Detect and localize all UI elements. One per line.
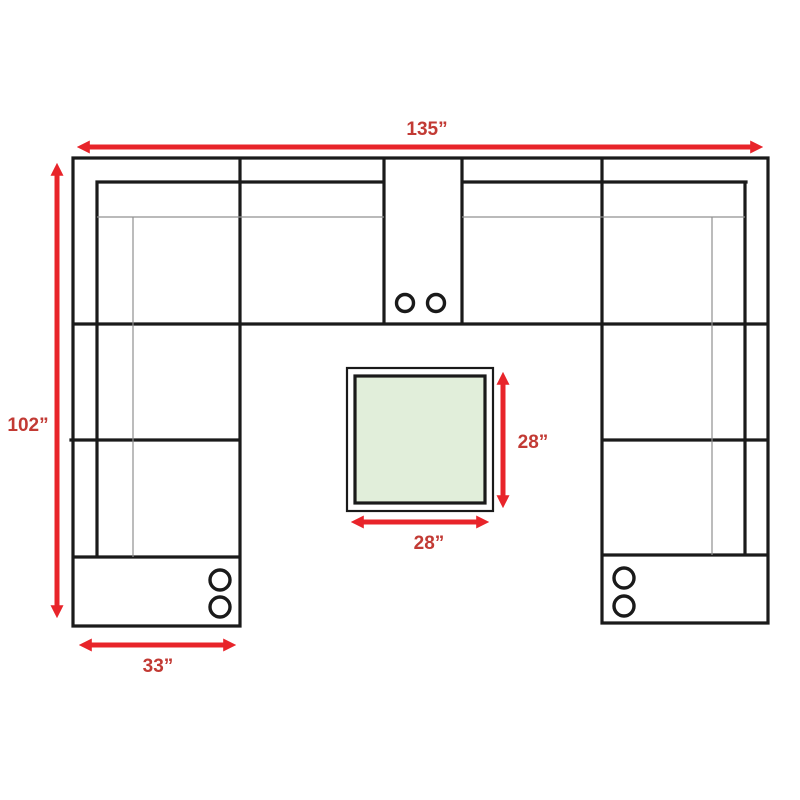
dimension-label-overall-depth: 102” <box>7 415 48 436</box>
floor-plan-canvas: 135” 102” 33” 28” 28” <box>0 0 800 800</box>
cupholder-icon <box>210 570 230 590</box>
cupholder-icon <box>428 295 445 312</box>
cupholder-icon <box>210 597 230 617</box>
cupholder-icon <box>397 295 414 312</box>
cupholder-icon <box>614 596 634 616</box>
dimension-label-arm-width: 33” <box>143 656 174 677</box>
dimension-label-table-depth: 28” <box>518 432 549 453</box>
center-table <box>347 368 493 511</box>
dimension-label-table-width: 28” <box>414 533 445 554</box>
dimension-label-overall-width: 135” <box>406 119 447 140</box>
floor-plan: 135” 102” 33” 28” 28” <box>0 0 800 800</box>
cupholder-icon <box>614 568 634 588</box>
table-top <box>355 376 485 503</box>
